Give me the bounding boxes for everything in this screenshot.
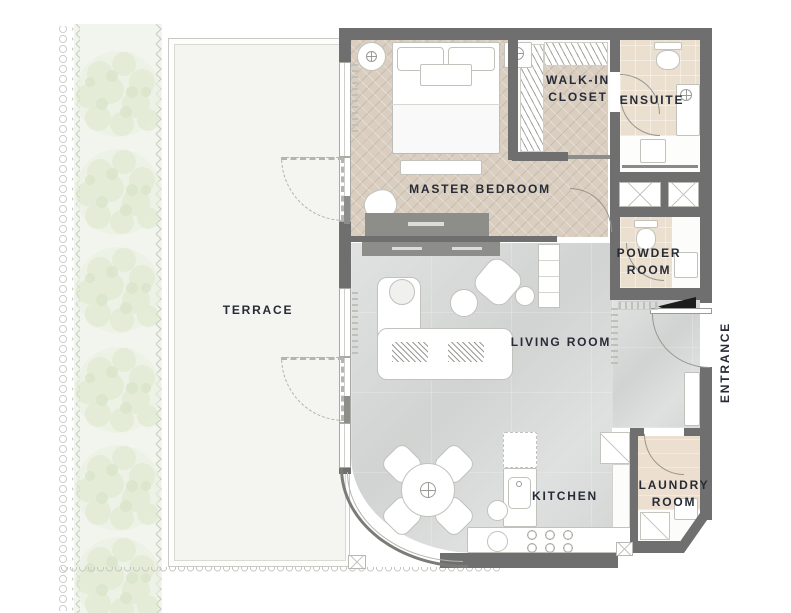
- landscape-strip: [58, 24, 172, 613]
- shelf-unit: [538, 244, 560, 308]
- curved-window-inner-line: [347, 472, 463, 562]
- window: [339, 288, 351, 357]
- planting-bed: [72, 24, 162, 613]
- wall-segment: [684, 428, 700, 436]
- curtain-icon: [352, 292, 358, 356]
- curtain-icon: [352, 64, 358, 134]
- zigzag-border-icon: [72, 24, 80, 613]
- label-ensuite: ENSUITE: [610, 92, 694, 109]
- toilet-tank: [654, 42, 682, 50]
- fridge: [503, 432, 537, 468]
- washer: [640, 512, 670, 540]
- shaft-icon: [619, 182, 661, 207]
- side-table: [515, 286, 535, 306]
- sofa-headrest: [389, 279, 415, 305]
- wall-segment: [512, 152, 568, 161]
- wall-segment: [508, 40, 518, 160]
- window: [339, 423, 351, 468]
- duvet-fold: [392, 104, 500, 154]
- sofa-pillows: [392, 342, 428, 362]
- label-laundry-room: LAUNDRY ROOM: [626, 477, 722, 512]
- label-kitchen: KITCHEN: [518, 488, 612, 505]
- console-handle: [392, 247, 422, 250]
- door-leaf: [344, 396, 350, 424]
- label-living-room: LIVING ROOM: [486, 334, 636, 351]
- stool: [487, 500, 508, 521]
- ensuite-sink: [640, 139, 666, 163]
- toilet-tank: [634, 220, 658, 228]
- wall-segment: [700, 28, 712, 303]
- coffee-table: [450, 289, 478, 317]
- hall-cabinet: [684, 372, 700, 426]
- sofa-pillows: [448, 342, 484, 362]
- hanger-rail-icon: [544, 42, 608, 66]
- wall-segment: [630, 541, 680, 553]
- door-swing-chord: [281, 157, 344, 158]
- console-handle: [408, 222, 444, 226]
- scallop-trim-icon: [60, 567, 500, 577]
- stove-burners-icon: [524, 528, 584, 554]
- label-entrance: ENTRANCE: [717, 303, 737, 403]
- wall-segment: [610, 40, 620, 72]
- wall-segment: [339, 222, 351, 288]
- entrance-door-leaf: [650, 308, 712, 314]
- wall-segment: [339, 28, 351, 62]
- wall-segment: [610, 112, 620, 172]
- label-master-bedroom: MASTER BEDROOM: [375, 181, 585, 198]
- faucet-icon: [516, 481, 522, 487]
- lamp-icon: [366, 51, 377, 62]
- entry-mat-icon: [618, 301, 658, 310]
- pocket-door-track: [568, 155, 612, 159]
- label-terrace: TERRACE: [168, 302, 348, 319]
- coil-edging-icon: [58, 26, 68, 611]
- window: [339, 62, 351, 157]
- tall-cabinet: [600, 432, 630, 464]
- wall-segment: [610, 288, 712, 300]
- floor-plan: TERRACE MASTER BEDROOM WALK-IN CLOSET EN…: [0, 0, 791, 613]
- bed-bench: [400, 160, 482, 175]
- shaft-icon: [668, 182, 699, 207]
- shaft-icon: [616, 542, 633, 556]
- vanity-counter-edge: [622, 165, 698, 168]
- shaft-icon: [348, 555, 366, 569]
- toilet: [656, 50, 680, 70]
- wall-segment: [339, 28, 712, 40]
- door-swing-chord: [281, 357, 344, 358]
- stool: [487, 531, 508, 552]
- label-powder-room: POWDER ROOM: [606, 245, 692, 280]
- console-handle: [452, 247, 482, 250]
- wall-segment: [351, 236, 557, 242]
- door-leaf: [344, 196, 350, 224]
- bed-cushion: [420, 64, 472, 86]
